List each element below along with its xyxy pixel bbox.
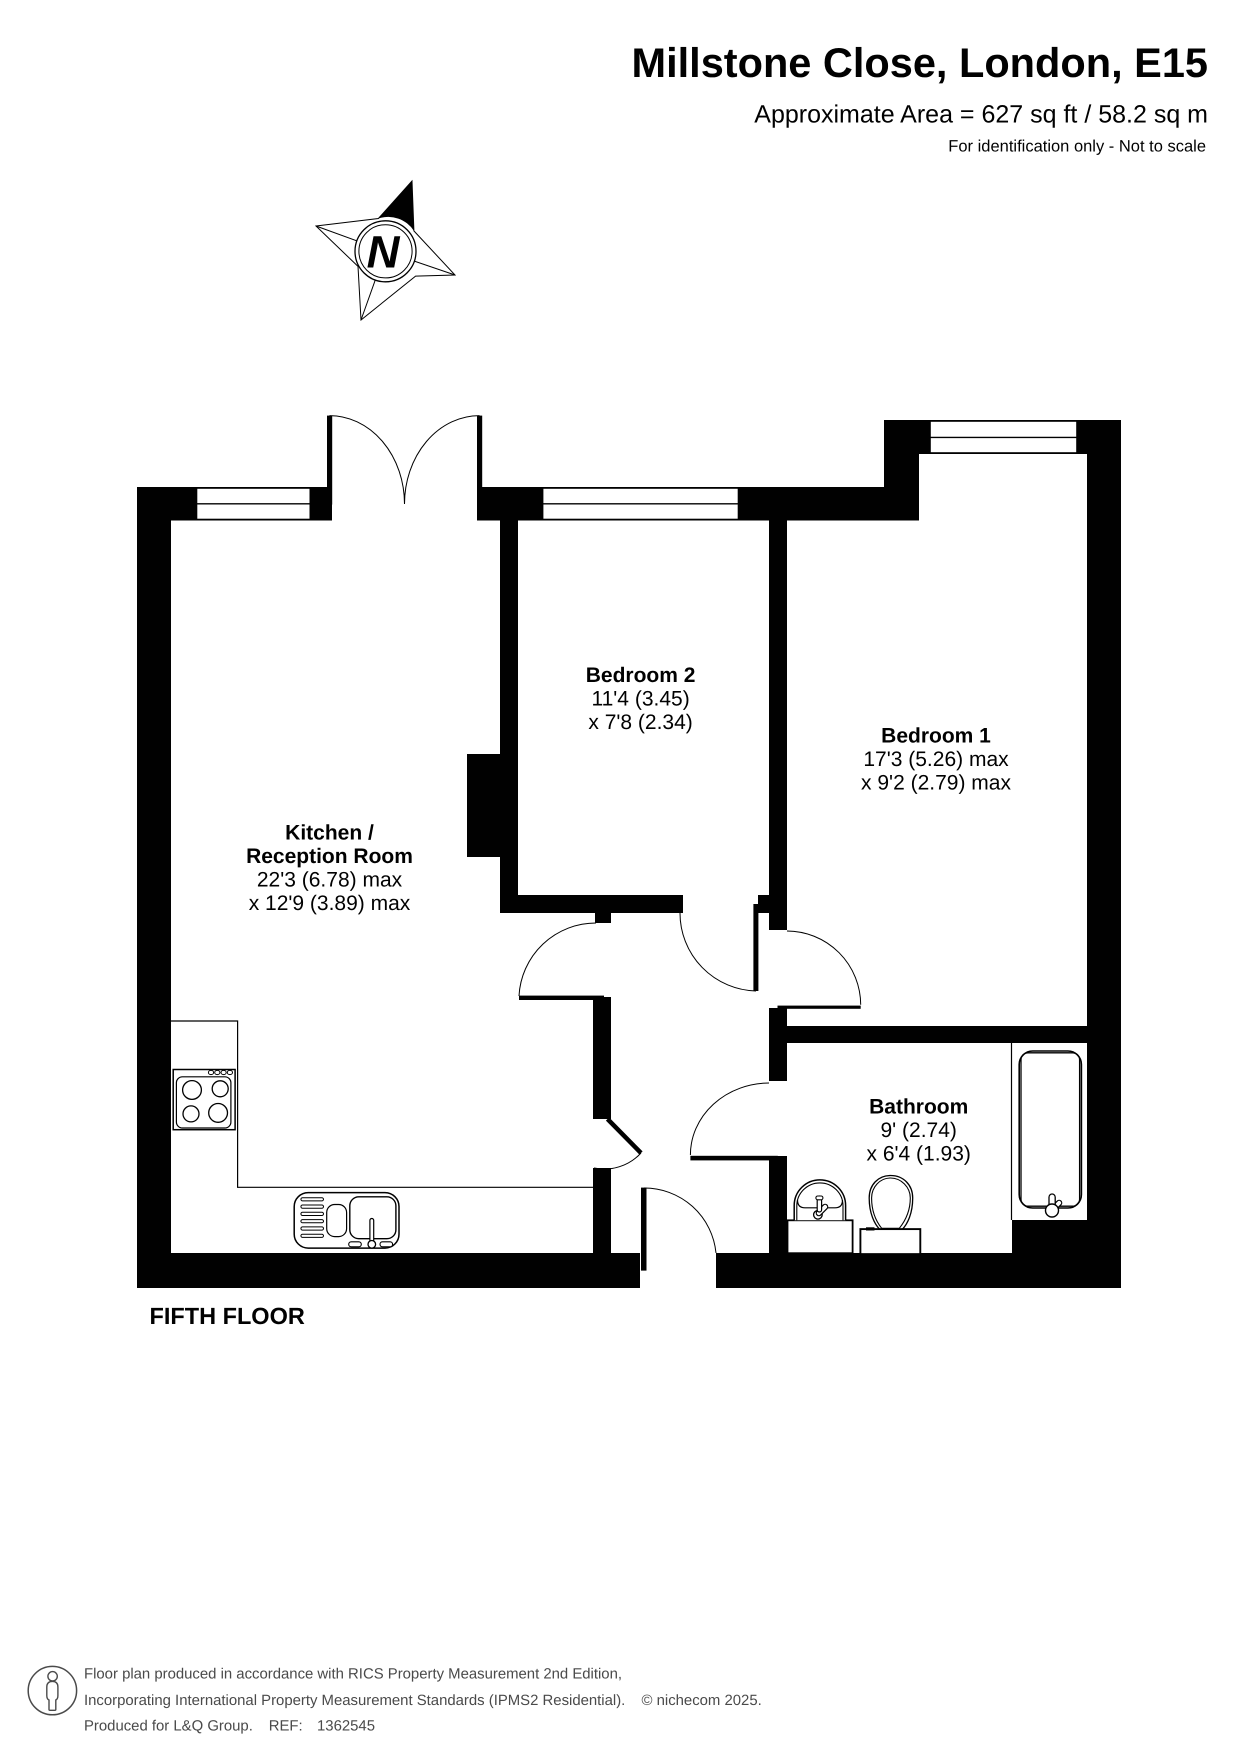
svg-text:© nichecom 2025.: © nichecom 2025. — [642, 1693, 762, 1709]
svg-text:Approximate Area = 627 sq ft /: Approximate Area = 627 sq ft / 58.2 sq m — [754, 101, 1208, 129]
svg-text:Reception Room: Reception Room — [246, 845, 413, 868]
svg-text:Incorporating International Pr: Incorporating International Property Mea… — [84, 1693, 625, 1709]
svg-text:N: N — [367, 227, 401, 278]
svg-text:Bedroom 2: Bedroom 2 — [586, 664, 696, 687]
svg-text:17'3 (5.26) max: 17'3 (5.26) max — [863, 748, 1009, 771]
svg-text:Produced for L&Q Group.: Produced for L&Q Group. — [84, 1719, 253, 1735]
svg-text:Bathroom: Bathroom — [869, 1096, 968, 1119]
svg-text:1362545: 1362545 — [317, 1719, 375, 1735]
svg-text:x 9'2 (2.79) max: x 9'2 (2.79) max — [861, 771, 1011, 794]
svg-text:22'3 (6.78) max: 22'3 (6.78) max — [257, 869, 403, 892]
svg-text:x 12'9 (3.89) max: x 12'9 (3.89) max — [249, 892, 411, 915]
svg-text:Floor plan produced in accorda: Floor plan produced in accordance with R… — [84, 1666, 622, 1682]
svg-text:Millstone Close, London, E15: Millstone Close, London, E15 — [632, 39, 1208, 86]
svg-text:REF:: REF: — [269, 1719, 303, 1735]
svg-text:11'4 (3.45): 11'4 (3.45) — [592, 687, 690, 710]
svg-text:x 7'8 (2.34): x 7'8 (2.34) — [588, 711, 692, 734]
svg-text:Kitchen /: Kitchen / — [285, 822, 374, 845]
svg-text:9' (2.74): 9' (2.74) — [881, 1119, 957, 1142]
svg-text:x 6'4 (1.93): x 6'4 (1.93) — [866, 1143, 970, 1166]
svg-text:Bedroom 1: Bedroom 1 — [881, 724, 991, 747]
svg-text:For identification only - Not: For identification only - Not to scale — [948, 138, 1206, 156]
svg-text:FIFTH FLOOR: FIFTH FLOOR — [150, 1303, 305, 1329]
